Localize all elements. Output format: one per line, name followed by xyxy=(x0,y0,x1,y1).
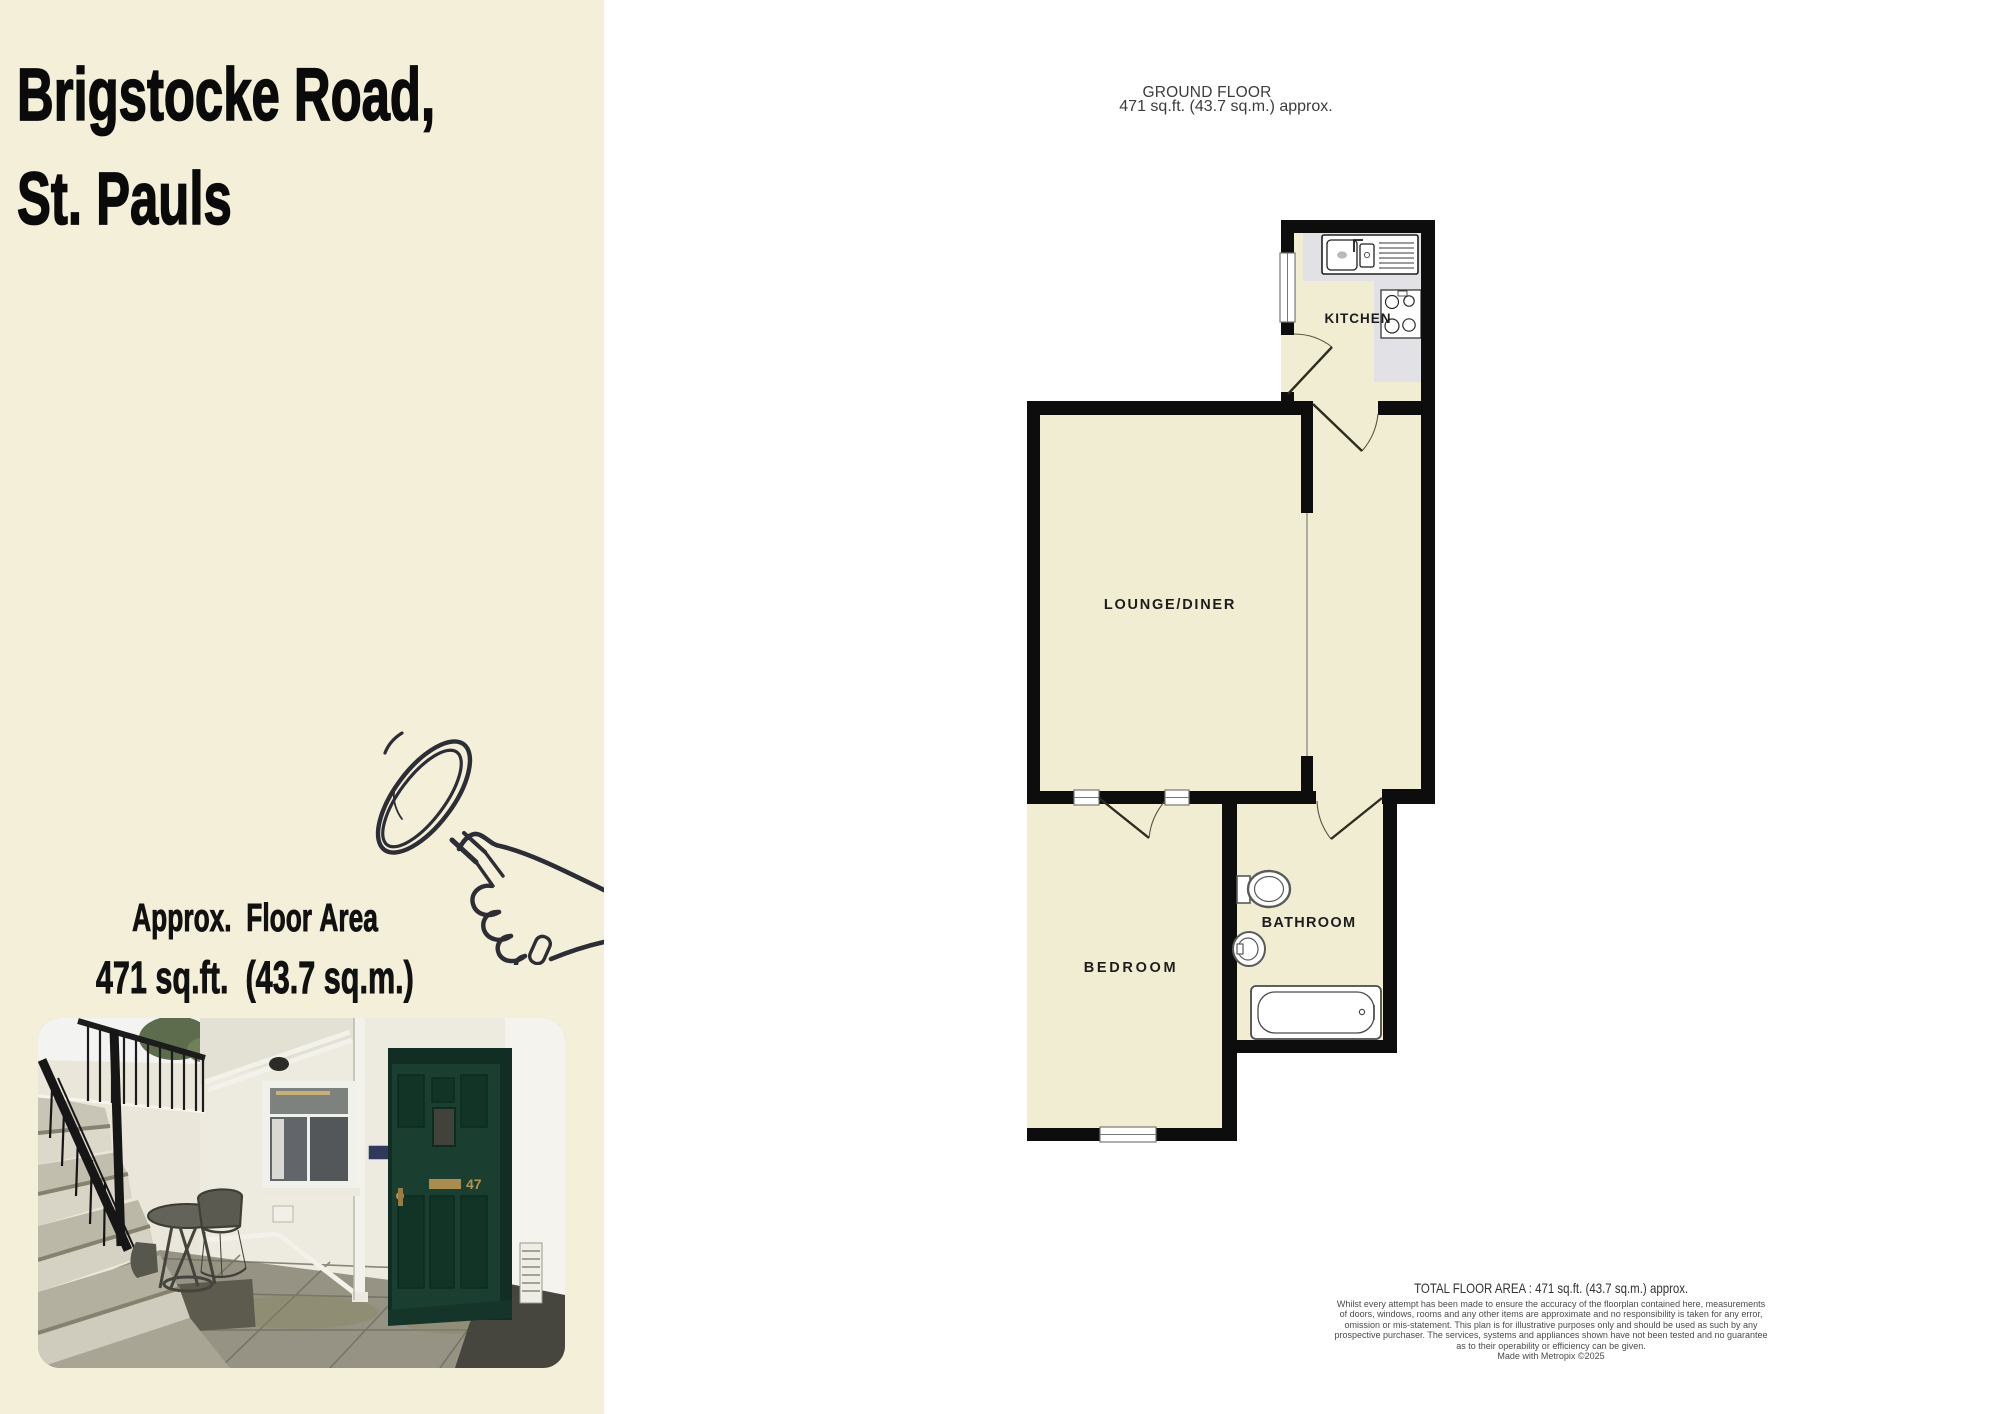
svg-text:47: 47 xyxy=(466,1176,482,1192)
svg-text:LOUNGE/DINER: LOUNGE/DINER xyxy=(1104,597,1236,613)
svg-text:KITCHEN: KITCHEN xyxy=(1325,311,1392,326)
svg-text:BATHROOM: BATHROOM xyxy=(1262,915,1357,931)
svg-text:BEDROOM: BEDROOM xyxy=(1084,960,1179,976)
